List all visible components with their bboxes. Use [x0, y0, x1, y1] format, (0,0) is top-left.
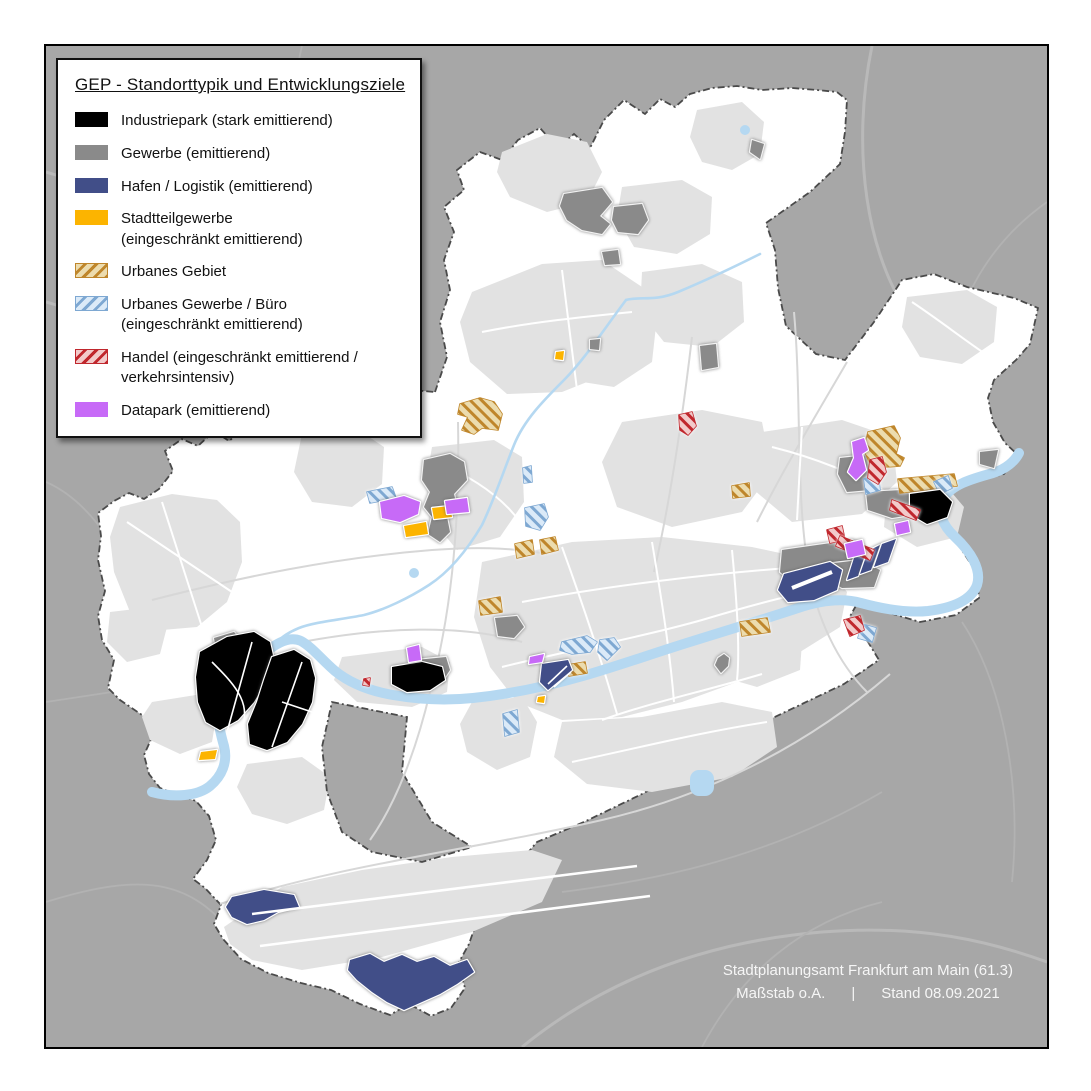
legend-item-label: Handel (eingeschränkt emittierend / [121, 349, 358, 366]
zone-stadtteilgewerbe [555, 351, 564, 360]
zone-urbanes-gebiet [458, 398, 502, 434]
zone-gewerbe [590, 339, 600, 350]
lake [690, 770, 714, 796]
legend-item-gewerbe: Gewerbe (emittierend) [75, 144, 405, 164]
legend: GEP - Standorttypik und Entwicklungsziel… [56, 58, 422, 438]
legend-item-hafen: Hafen / Logistik (emittierend) [75, 177, 405, 197]
legend-item-handel: Handel (eingeschränkt emittierend /verke… [75, 348, 405, 389]
legend-item-datapark: Datapark (emittierend) [75, 401, 405, 421]
attribution-scale: Maßstab o.A. [736, 985, 825, 1002]
urbanes-gebiet-swatch-icon [75, 263, 108, 278]
industriepark-swatch-icon [75, 112, 108, 127]
legend-item-label: Urbanes Gebiet [121, 263, 226, 280]
legend-item-sublabel: (eingeschränkt emittierend) [121, 230, 303, 250]
legend-item-urbanes-gebiet: Urbanes Gebiet [75, 262, 405, 282]
stadtteilgewerbe-swatch-icon [75, 210, 108, 225]
legend-item-label: Datapark (emittierend) [121, 402, 270, 419]
zone-urbanes-gebiet [479, 597, 502, 615]
zone-gewerbe [980, 450, 998, 468]
zone-urbanes-gewerbe [523, 466, 532, 483]
legend-item-label: Industriepark (stark emittierend) [121, 112, 333, 129]
urbanes-gewerbe-swatch-icon [75, 296, 108, 311]
hafen-swatch-icon [75, 178, 108, 193]
zone-urbanes-gebiet [540, 537, 558, 554]
legend-item-urbanes-gewerbe: Urbanes Gewerbe / Büro(eingeschränkt emi… [75, 295, 405, 336]
zone-stadtteilgewerbe [199, 750, 217, 760]
handel-swatch-icon [75, 349, 108, 364]
legend-title: GEP - Standorttypik und Entwicklungsziel… [75, 75, 405, 95]
zone-urbanes-gebiet [740, 618, 770, 636]
zone-datapark [845, 540, 865, 558]
attribution-separator: | [851, 983, 855, 1006]
attribution-date: Stand 08.09.2021 [881, 985, 999, 1002]
zone-datapark [445, 498, 469, 514]
zone-stadtteilgewerbe [537, 696, 545, 703]
zone-gewerbe [612, 204, 648, 234]
zone-stadtteilgewerbe [404, 522, 428, 537]
zone-gewerbe [700, 344, 718, 370]
attribution-line2: Maßstab o.A.|Stand 08.09.2021 [723, 983, 1013, 1006]
attribution-line1: Stadtplanungsamt Frankfurt am Main (61.3… [723, 960, 1013, 983]
legend-item-industriepark: Industriepark (stark emittierend) [75, 111, 405, 131]
gewerbe-swatch-icon [75, 145, 108, 160]
zone-handel [363, 678, 370, 686]
zone-datapark [895, 521, 910, 535]
zone-urbanes-gewerbe [503, 710, 519, 736]
datapark-swatch-icon [75, 402, 108, 417]
zone-datapark [407, 645, 421, 662]
legend-item-label: Gewerbe (emittierend) [121, 145, 270, 162]
zone-urbanes-gebiet [515, 540, 534, 558]
page: { "legend": { "title": "GEP - Standortty… [0, 0, 1091, 1091]
legend-item-label: Urbanes Gewerbe / Büro [121, 296, 287, 313]
legend-item-sublabel: (eingeschränkt emittierend) [121, 315, 303, 335]
zone-urbanes-gebiet [732, 483, 750, 498]
attribution: Stadtplanungsamt Frankfurt am Main (61.3… [723, 960, 1013, 1005]
legend-item-sublabel: verkehrsintensiv) [121, 368, 358, 388]
legend-item-label: Hafen / Logistik (emittierend) [121, 178, 313, 195]
zone-gewerbe [602, 250, 620, 265]
legend-item-label: Stadtteilgewerbe [121, 210, 233, 227]
legend-item-stadtteilgewerbe: Stadtteilgewerbe(eingeschränkt emittiere… [75, 209, 405, 250]
